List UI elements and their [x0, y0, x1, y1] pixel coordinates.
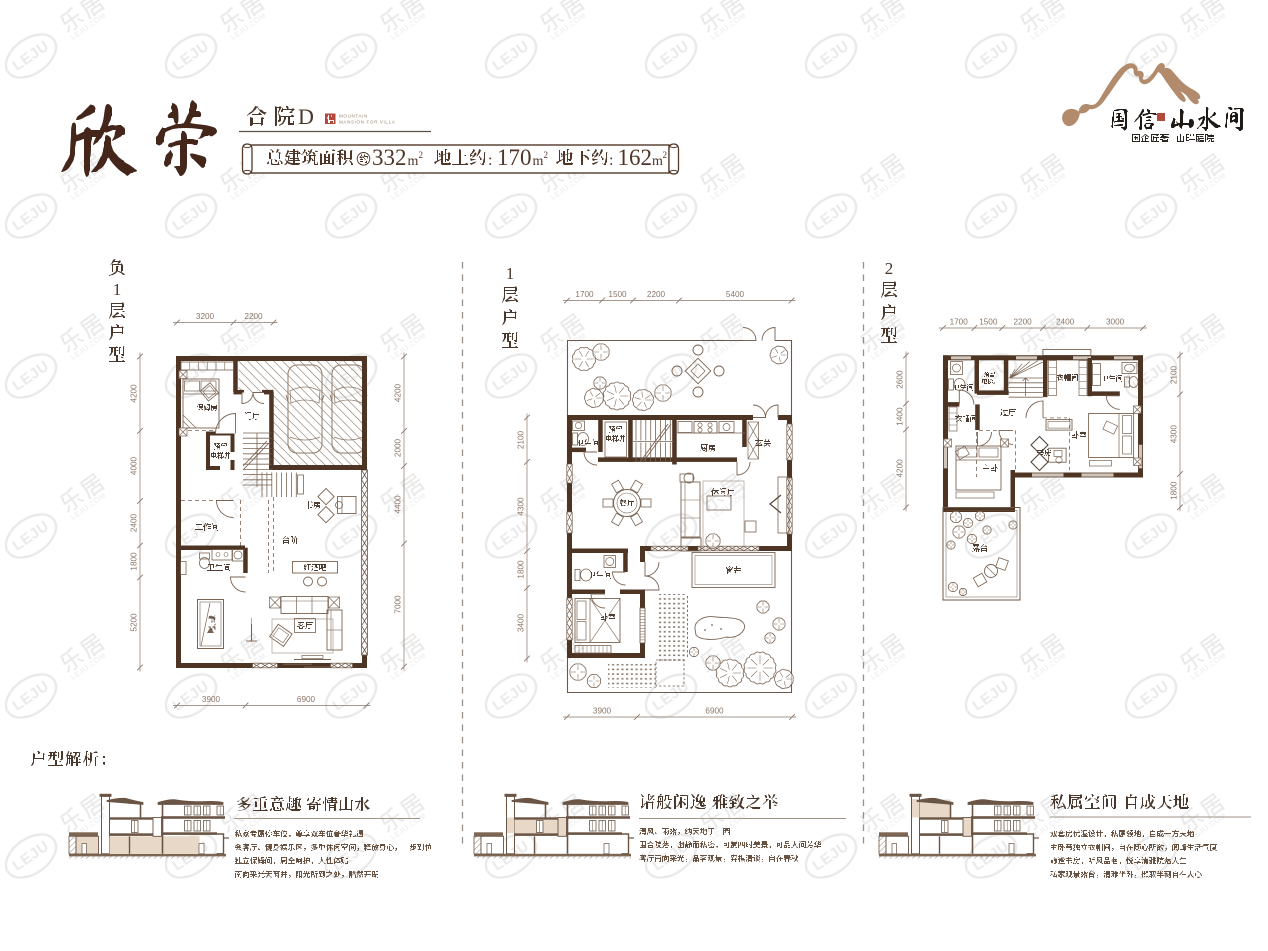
- svg-text:2: 2: [419, 150, 424, 160]
- svg-text:2100: 2100: [1170, 365, 1179, 384]
- svg-text:MANSION FOR VILLA: MANSION FOR VILLA: [339, 120, 396, 125]
- svg-text:2: 2: [885, 259, 894, 278]
- svg-text:4300: 4300: [517, 497, 526, 516]
- svg-text:4400: 4400: [394, 495, 403, 514]
- svg-text:162: 162: [618, 145, 653, 170]
- svg-text:MOUNTAIN: MOUNTAIN: [339, 114, 368, 119]
- svg-text:3200: 3200: [196, 312, 215, 321]
- svg-text:3000: 3000: [1106, 318, 1125, 327]
- svg-text:1700: 1700: [575, 290, 594, 299]
- svg-text:2200: 2200: [647, 290, 666, 299]
- svg-text:2200: 2200: [244, 312, 263, 321]
- svg-text:2: 2: [544, 150, 549, 160]
- svg-text:2200: 2200: [1013, 318, 1032, 327]
- svg-text:3900: 3900: [593, 707, 612, 716]
- svg-text:m: m: [533, 154, 544, 169]
- svg-text:1800: 1800: [130, 552, 139, 571]
- svg-text:3400: 3400: [517, 613, 526, 632]
- svg-text:2400: 2400: [130, 513, 139, 532]
- svg-text:4200: 4200: [130, 384, 139, 403]
- svg-text:2: 2: [663, 150, 668, 160]
- svg-text:5400: 5400: [726, 290, 745, 299]
- svg-text:4000: 4000: [130, 456, 139, 475]
- svg-text:7000: 7000: [394, 595, 403, 614]
- svg-text:3900: 3900: [202, 695, 221, 704]
- svg-text:D: D: [298, 104, 314, 129]
- svg-text:5200: 5200: [130, 613, 139, 632]
- svg-text:1800: 1800: [1170, 481, 1179, 500]
- svg-text::: :: [488, 152, 492, 169]
- svg-text:4300: 4300: [1170, 425, 1179, 444]
- svg-text:m: m: [652, 154, 663, 169]
- svg-text:m: m: [408, 154, 419, 169]
- svg-text:1800: 1800: [517, 560, 526, 579]
- svg-text:1400: 1400: [896, 407, 905, 426]
- svg-text:1700: 1700: [950, 318, 969, 327]
- svg-text::: :: [609, 152, 613, 169]
- svg-text:4200: 4200: [896, 459, 905, 478]
- svg-text:2600: 2600: [896, 370, 905, 389]
- svg-text:6900: 6900: [705, 707, 724, 716]
- svg-text:170: 170: [497, 145, 532, 170]
- svg-text:1: 1: [506, 264, 515, 283]
- svg-text:2000: 2000: [394, 438, 403, 457]
- svg-text:6900: 6900: [297, 695, 316, 704]
- svg-text:2100: 2100: [517, 430, 526, 449]
- svg-text:1: 1: [113, 280, 122, 299]
- svg-text:2400: 2400: [1056, 318, 1075, 327]
- svg-text:332: 332: [372, 145, 407, 170]
- svg-text:1500: 1500: [608, 290, 627, 299]
- svg-text:1500: 1500: [979, 318, 998, 327]
- svg-text:4200: 4200: [394, 383, 403, 402]
